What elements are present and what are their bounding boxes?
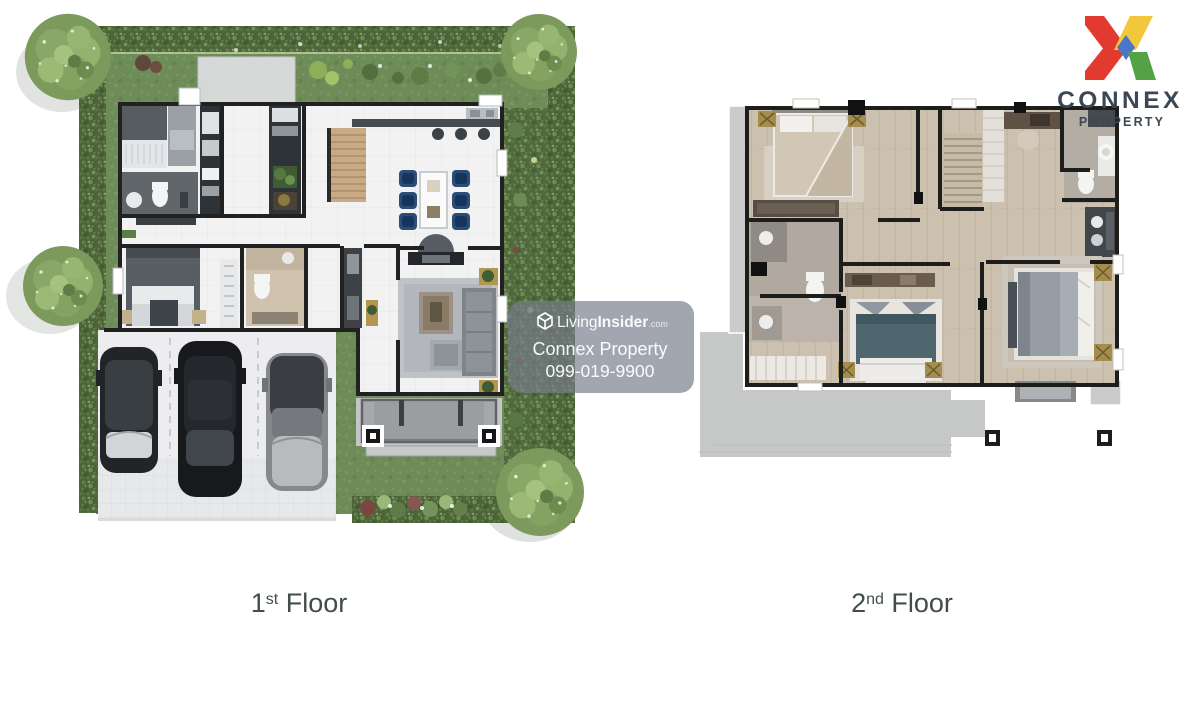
svg-text:PROPERTY: PROPERTY — [1079, 115, 1165, 129]
svg-text:099-019-9900: 099-019-9900 — [546, 361, 655, 381]
svg-text:CONNEX: CONNEX — [1057, 87, 1183, 114]
svg-text:1st Floor: 1st Floor — [251, 588, 348, 618]
svg-text:Connex Property: Connex Property — [532, 339, 667, 359]
